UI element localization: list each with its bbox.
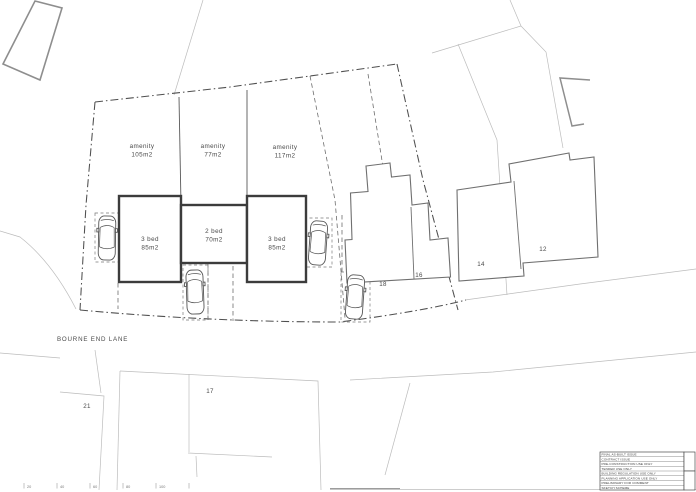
building-top-left	[3, 1, 62, 80]
plot-21-boundary	[60, 392, 104, 490]
neighbor-label-17: 17	[206, 388, 214, 395]
house-label-plot1: 3 bed85m2	[141, 236, 159, 252]
kerb-curve	[0, 231, 76, 309]
scale-tick-label: 100	[159, 485, 165, 489]
scale-tick-label: 40	[60, 485, 64, 489]
site-plan-sheet: amenity105m2 amenity77m2 amenity117m2 3 …	[0, 0, 696, 492]
neighbor-label-18: 18	[379, 281, 387, 288]
scale-tick-label: 20	[27, 485, 31, 489]
car-icon	[306, 220, 330, 265]
neighbor-label-14: 14	[477, 261, 485, 268]
plot-21-boundary	[95, 350, 101, 393]
car-icon	[96, 216, 117, 260]
scale-tick-label: 60	[93, 485, 97, 489]
amenity-label-plot3: amenity117m2	[273, 144, 298, 160]
scale-bar: 20 40 60 80 100	[24, 483, 189, 489]
plot-17-internal-line	[196, 456, 197, 477]
road-name-label: BOURNE END LANE	[57, 336, 128, 343]
title-block-row: PRELIMINARY FOR COMMENT	[602, 481, 649, 485]
plot-17-boundary	[117, 371, 120, 490]
neighbor-label-16: 16	[415, 272, 423, 279]
road-edge	[350, 352, 696, 380]
title-block-row: TENDER USE ONLY	[602, 467, 633, 471]
title-block-row: PLANNING APPLICATION USE ONLY	[602, 476, 658, 480]
car-icon	[184, 270, 206, 315]
title-block-row: PRE-CONSTRUCTION USE ONLY	[602, 462, 653, 466]
plot-17-boundary	[120, 371, 321, 490]
site-boundary-front	[80, 300, 466, 322]
title-block-row: FINAL AS-BUILT ISSUE	[602, 453, 637, 457]
road-edge	[0, 353, 60, 358]
site-boundary-rear	[95, 64, 397, 102]
amenity-label-plot1: amenity105m2	[130, 143, 155, 159]
site-boundary-west	[80, 102, 95, 310]
boundary-line	[521, 26, 563, 148]
title-block-row: BUILDING REGULATION USE ONLY	[602, 472, 656, 476]
plot-3-east-boundary	[310, 76, 345, 318]
building-18-16	[345, 163, 451, 283]
title-block-row: CONTRACT ISSUE	[602, 457, 631, 461]
house-label-plot3: 3 bed85m2	[268, 236, 286, 252]
scale-tick-label: 80	[126, 485, 130, 489]
title-block-row: SKETCH SCHEME	[602, 486, 630, 490]
boundary-line	[385, 383, 410, 475]
plot-17-internal-line	[188, 453, 272, 457]
boundary-line	[432, 0, 521, 53]
neighbor-label-12: 12	[539, 246, 547, 253]
neighbor-label-21: 21	[83, 403, 91, 410]
building-partial-top-right	[560, 78, 590, 126]
house-label-plot2: 2 bed70m2	[205, 228, 223, 244]
title-block-check-cell	[684, 471, 695, 490]
boundary-line	[174, 0, 203, 95]
title-block: FINAL AS-BUILT ISSUE CONTRACT ISSUE PRE-…	[600, 452, 695, 490]
garden-fence	[179, 97, 181, 205]
amenity-label-plot2: amenity77m2	[201, 143, 226, 159]
site-plan-drawing: amenity105m2 amenity77m2 amenity117m2 3 …	[0, 0, 696, 492]
title-block-check-cell	[684, 452, 695, 471]
